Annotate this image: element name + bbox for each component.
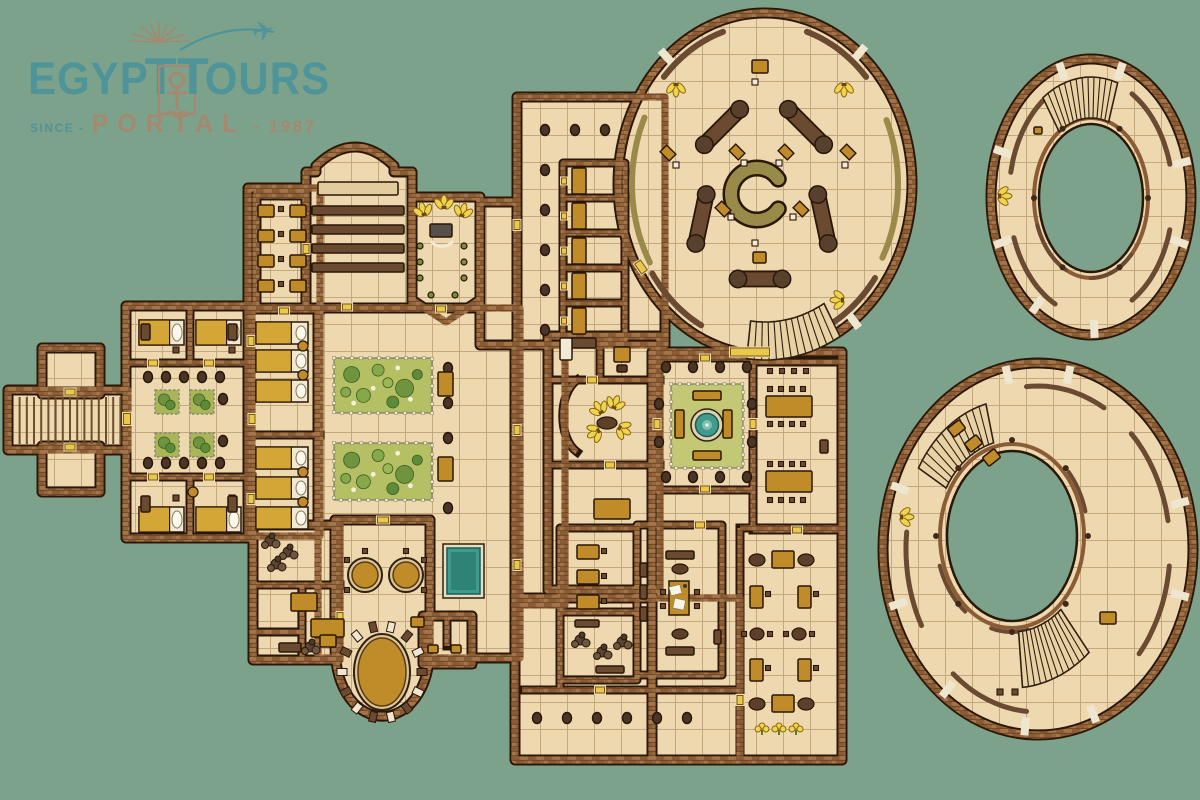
stool [814,592,819,597]
stool [768,462,773,467]
hatch [20,397,121,444]
stool [422,558,427,563]
door [376,516,390,525]
stool [790,462,795,467]
stool [404,549,409,554]
rect [666,647,694,655]
stool [345,558,350,563]
rect [290,255,306,267]
stool [784,632,789,637]
stool [779,387,784,392]
stool [779,498,784,503]
rug [749,698,765,710]
rect [290,230,306,242]
stool [810,632,815,637]
rect [752,60,768,73]
rect [640,607,647,621]
stool [790,498,795,503]
stool [801,462,806,467]
pool [348,558,382,592]
stool [801,422,806,427]
rect [675,410,684,438]
ring-large-opening [947,451,1077,621]
stool [801,387,806,392]
rect [438,372,453,396]
stool [602,549,607,554]
column [219,436,228,447]
stool [602,599,607,604]
column [655,399,664,410]
stool [768,369,773,374]
rect [572,308,586,334]
bed [256,477,308,499]
door [560,317,568,326]
rect [575,620,599,627]
planter [155,433,179,457]
circ [461,259,467,265]
column [655,437,664,448]
stool [814,666,819,671]
stool [768,422,773,427]
stool [779,462,784,467]
rect [766,396,812,417]
column [219,394,228,405]
rect [750,659,763,681]
stool [661,604,666,609]
circ [461,275,467,281]
circ [188,487,198,497]
rect [312,244,404,253]
circ [298,497,308,507]
rect [1034,127,1042,134]
door [513,559,522,571]
door [513,219,522,231]
rect [772,551,794,568]
door [594,686,606,695]
rect [258,280,274,292]
rect [258,205,274,217]
ring-small-opening [1039,124,1143,272]
stool [752,79,758,85]
rect [312,225,404,234]
door [749,418,758,430]
stool [279,232,284,237]
circ [417,259,423,265]
rect [798,586,811,608]
egap [1020,717,1030,736]
stool [279,257,284,262]
rect [411,617,424,627]
stool [780,369,785,374]
rect [577,595,599,609]
stool [673,162,679,168]
fountain [691,409,723,441]
stool [661,590,666,595]
portal-label: PORTAL [92,110,247,139]
rect [290,205,306,217]
door [560,247,568,256]
rect [228,324,237,340]
rect [594,499,630,519]
since-label: SINCE - [30,121,85,135]
rect [290,280,306,292]
rug [672,629,688,639]
bed [256,507,308,529]
rug [792,628,806,640]
stool [728,214,734,220]
door [699,354,711,363]
rect [614,347,630,362]
egap [1090,320,1099,338]
door [64,388,77,397]
door [278,307,290,316]
stool [741,160,747,166]
door [435,305,447,314]
stool [752,240,758,246]
rug [597,417,617,429]
stool [801,498,806,503]
rect [141,324,150,340]
map-stage: ✈ EGYP T T OURS SINCE - PORTAL - 1987 [0,0,1200,800]
garden [333,442,434,502]
rect [572,238,586,264]
rect [723,410,732,438]
door [513,424,522,436]
door [560,177,568,186]
stool [363,549,368,554]
brand-subtitle-row: SINCE - PORTAL - 1987 [30,110,317,139]
rect [1100,612,1116,624]
rect [291,593,317,611]
rect [617,365,627,372]
stool [768,632,773,637]
door [729,347,771,358]
circ [417,275,423,281]
rect [577,570,599,584]
watermark-logo: ✈ EGYP T T OURS SINCE - PORTAL - 1987 [28,36,318,146]
column [748,399,757,410]
rug [749,554,765,566]
rect [666,551,694,559]
stool [804,369,809,374]
stool [173,347,179,353]
door [203,473,215,482]
stool [997,689,1003,695]
rect [438,457,453,481]
door [247,335,256,347]
rect [560,338,572,360]
rect [572,168,586,194]
desk [669,581,689,615]
rect [572,203,586,229]
rect [753,252,766,263]
rect [693,391,721,400]
stool [790,387,795,392]
door [248,413,257,425]
stool [695,604,700,609]
year-label: - 1987 [253,117,316,137]
stool [742,632,747,637]
bed [256,447,308,469]
pool [354,634,410,710]
rect [451,645,461,653]
floor-link-hall [480,202,517,345]
stool [422,588,427,593]
column [748,437,757,448]
stool [776,160,782,166]
door [604,461,616,470]
rect [772,695,794,712]
stool [792,369,797,374]
rect [279,643,301,652]
circ [452,292,458,298]
rug [672,564,688,574]
rect [141,496,150,512]
couch [729,270,790,287]
rug [750,628,764,640]
stool [790,422,795,427]
rect [428,645,438,653]
stool [345,588,350,593]
stool [1012,689,1018,695]
door [302,243,311,255]
rect [596,666,624,673]
stool [768,387,773,392]
door [247,493,256,505]
pool [389,558,423,592]
stool [779,422,784,427]
rect [312,206,404,215]
rect [640,563,647,577]
door [147,473,159,482]
door [147,359,159,368]
stool [766,666,771,671]
door [560,212,568,221]
rect [577,545,599,559]
rect [430,224,452,237]
rug [798,698,814,710]
door [560,282,568,291]
rect [766,471,812,492]
planter [190,390,214,414]
rect [750,586,763,608]
stool [766,592,771,597]
brand-egyp-text: EGYP [28,56,149,101]
circ [428,292,434,298]
circ [298,467,308,477]
stool [842,162,848,168]
rect [570,338,596,348]
door [341,303,353,312]
bed [256,322,308,344]
rect [320,635,336,647]
rect [640,585,647,599]
door [203,359,215,368]
door [653,418,662,430]
stool [602,574,607,579]
stool [173,495,179,501]
bed [256,350,308,372]
rect [312,263,404,272]
door [791,526,803,535]
stool [768,498,773,503]
door [736,694,745,706]
rect [318,182,398,195]
stool [279,207,284,212]
rug [798,554,814,566]
door [694,521,706,530]
tpool [443,544,484,598]
rect [693,451,721,460]
circ [298,341,308,351]
rect [798,659,811,681]
stool [229,347,235,353]
circ [298,370,308,380]
door [699,485,711,494]
planter [190,433,214,457]
garden [333,357,434,415]
circ [461,243,467,249]
rect [228,496,237,512]
rect [820,440,828,453]
stool [279,282,284,287]
stool [695,590,700,595]
brand-ours-text: OURS [205,56,330,101]
rect [258,255,274,267]
circ [417,243,423,249]
planter [155,390,179,414]
rect [258,230,274,242]
stool [790,214,796,220]
door [586,376,598,385]
rect [714,630,721,644]
rect [572,273,586,299]
door [64,443,77,452]
bed [256,380,308,402]
door [122,412,132,426]
